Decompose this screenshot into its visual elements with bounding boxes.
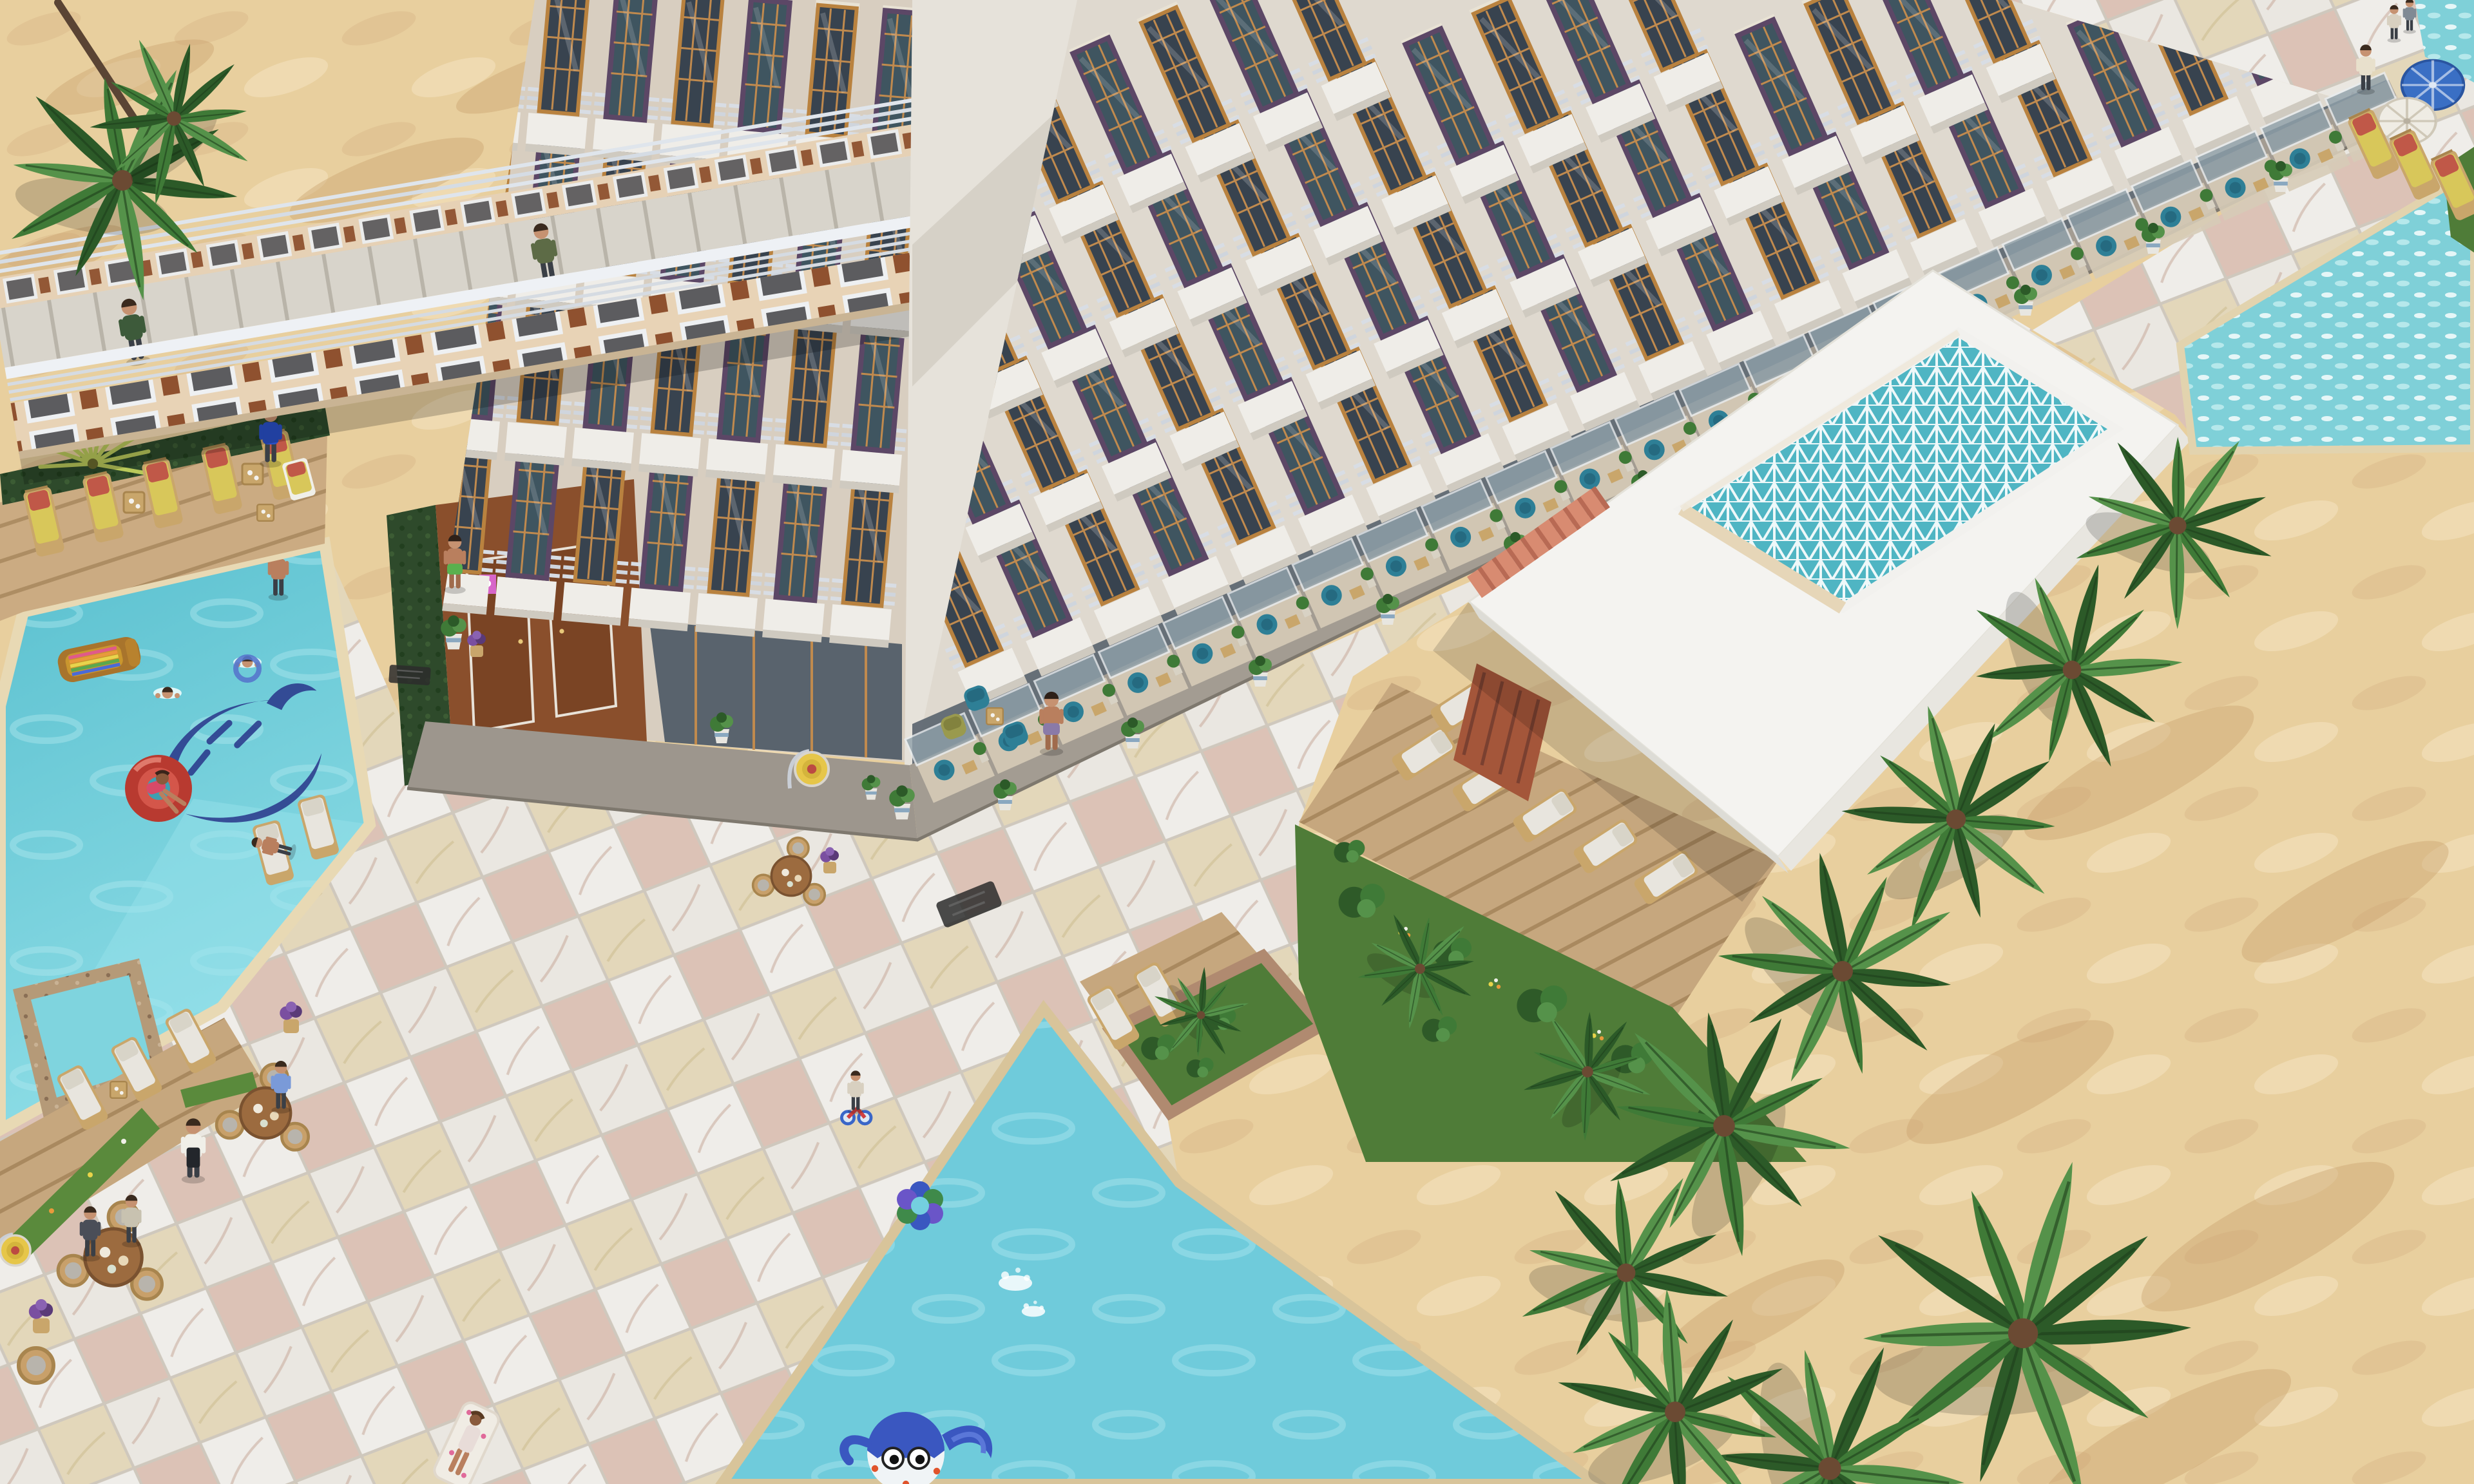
sidetable [257,504,274,521]
sidetable [124,492,144,513]
sidetable [986,708,1003,725]
doormat [388,665,431,685]
sidetable [110,1081,127,1098]
rattan-chair [19,1348,53,1383]
resort-aerial-render [0,0,2474,1484]
red-ring-float [125,755,192,822]
sidetable [242,464,263,484]
scene-canvas [0,0,2474,1484]
